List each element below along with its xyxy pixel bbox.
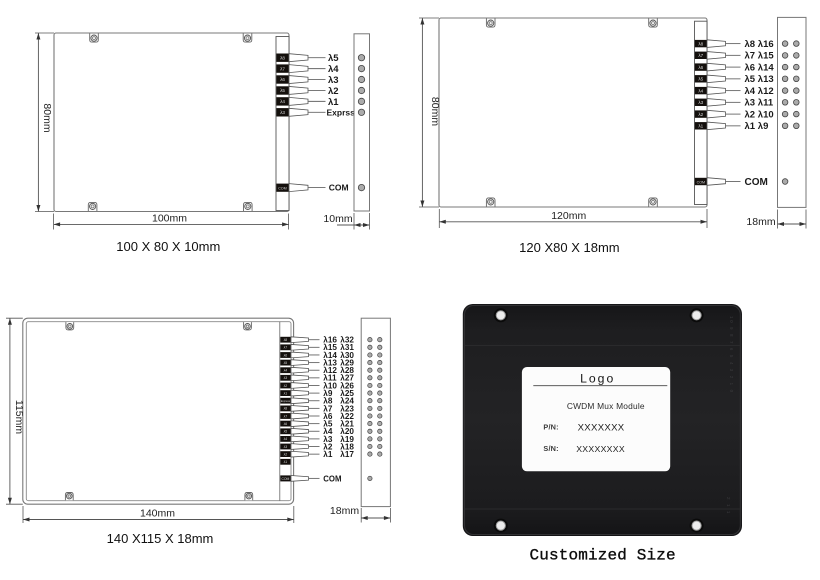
svg-text:λ14: λ14	[758, 62, 775, 73]
svg-text:λ2: λ2	[284, 384, 288, 388]
svg-text:λ15: λ15	[758, 51, 775, 62]
svg-text:λ4: λ4	[745, 86, 756, 97]
svg-text:λ6: λ6	[698, 65, 703, 70]
svg-text:100mm: 100mm	[152, 212, 187, 224]
svg-text:80mm: 80mm	[41, 103, 53, 132]
svg-text:λ3: λ3	[284, 445, 288, 449]
svg-text:λ17: λ17	[340, 450, 354, 459]
svg-text:λ10: λ10	[758, 109, 774, 120]
svg-text:120 X80 X 18mm: 120 X80 X 18mm	[519, 240, 619, 255]
svg-text:λ2: λ2	[284, 452, 288, 456]
svg-text:COM: COM	[281, 477, 289, 481]
svg-text:λ8: λ8	[698, 41, 703, 46]
svg-text:λ8: λ8	[280, 55, 285, 60]
svg-text:λ8: λ8	[745, 39, 756, 50]
svg-text:λ6: λ6	[284, 422, 288, 426]
svg-text:λ1: λ1	[284, 391, 288, 395]
svg-text:COM: COM	[329, 183, 349, 193]
svg-text:λ4: λ4	[284, 437, 288, 441]
svg-text:λ3: λ3	[284, 376, 288, 380]
svg-text:CWDM Mux Module: CWDM Mux Module	[567, 401, 645, 411]
svg-text:λ16: λ16	[758, 39, 774, 50]
svg-text:λ9: λ9	[758, 121, 769, 132]
svg-text:λ3: λ3	[698, 100, 703, 105]
svg-text:λ12: λ12	[758, 86, 774, 97]
svg-text:140mm: 140mm	[140, 508, 175, 520]
svg-text:λ4: λ4	[328, 64, 339, 75]
svg-text:λ1: λ1	[328, 97, 339, 108]
svg-text:λ7: λ7	[284, 414, 288, 418]
svg-text:XXXXXXXX: XXXXXXXX	[576, 444, 625, 454]
svg-text:λ4: λ4	[698, 88, 703, 93]
svg-text:λ2: λ2	[745, 109, 756, 120]
svg-text:120mm: 120mm	[551, 210, 586, 222]
svg-text:λ1: λ1	[284, 460, 288, 464]
svg-text:λ6: λ6	[280, 77, 285, 82]
svg-text:10 9 8 7 6 5 4 3 2 1 0: 10 9 8 7 6 5 4 3 2 1 0	[729, 316, 734, 394]
svg-text:COM: COM	[697, 180, 705, 184]
svg-text:λ8: λ8	[284, 338, 288, 342]
svg-text:18mm: 18mm	[330, 505, 359, 517]
svg-text:λ2: λ2	[328, 86, 339, 97]
svg-text:P/N:: P/N:	[543, 423, 558, 432]
svg-text:λ1: λ1	[745, 121, 756, 132]
svg-text:λ5: λ5	[284, 430, 288, 434]
svg-text:λ5: λ5	[328, 53, 339, 64]
svg-text:COM: COM	[323, 474, 341, 483]
svg-text:100 X 80 X 10mm: 100 X 80 X 10mm	[116, 239, 220, 254]
svg-text:Logo: Logo	[580, 371, 615, 385]
svg-text:COM: COM	[278, 186, 286, 190]
svg-text:λ6: λ6	[745, 62, 756, 73]
svg-text:2 1 1: 2 1 1	[726, 497, 731, 515]
svg-text:λ4: λ4	[280, 99, 285, 104]
svg-text:λ13: λ13	[758, 74, 774, 85]
svg-text:115mm: 115mm	[13, 400, 25, 434]
svg-text:140 X115 X 18mm: 140 X115 X 18mm	[107, 531, 214, 546]
svg-text:λ5: λ5	[284, 361, 288, 365]
svg-text:λ6: λ6	[284, 353, 288, 357]
svg-text:λ5: λ5	[698, 77, 703, 82]
svg-text:λ7: λ7	[280, 66, 285, 71]
svg-text:XXXXXXX: XXXXXXX	[578, 422, 625, 433]
svg-text:λ1: λ1	[323, 450, 333, 459]
svg-text:COM: COM	[745, 177, 768, 188]
svg-text:λ8: λ8	[284, 407, 288, 411]
svg-text:λ5: λ5	[280, 88, 285, 93]
svg-text:λ5: λ5	[745, 74, 756, 85]
svg-text:λ2: λ2	[698, 112, 703, 117]
svg-text:λ3: λ3	[280, 110, 285, 115]
svg-text:Customized Size: Customized Size	[530, 547, 676, 565]
svg-text:S/N:: S/N:	[543, 444, 558, 453]
svg-text:λ1: λ1	[698, 124, 703, 129]
svg-text:Exprss: Exprss	[327, 108, 356, 118]
svg-text:λ3: λ3	[745, 98, 756, 109]
svg-text:λ7: λ7	[698, 53, 703, 58]
svg-text:λ7: λ7	[745, 51, 756, 62]
svg-text:Express: Express	[281, 399, 291, 403]
svg-text:10mm: 10mm	[323, 213, 352, 225]
svg-text:λ3: λ3	[328, 75, 339, 86]
svg-text:λ4: λ4	[284, 369, 288, 373]
svg-text:λ11: λ11	[758, 98, 774, 109]
svg-text:λ7: λ7	[284, 346, 288, 350]
svg-text:80mm: 80mm	[429, 97, 441, 126]
svg-text:18mm: 18mm	[746, 216, 775, 228]
